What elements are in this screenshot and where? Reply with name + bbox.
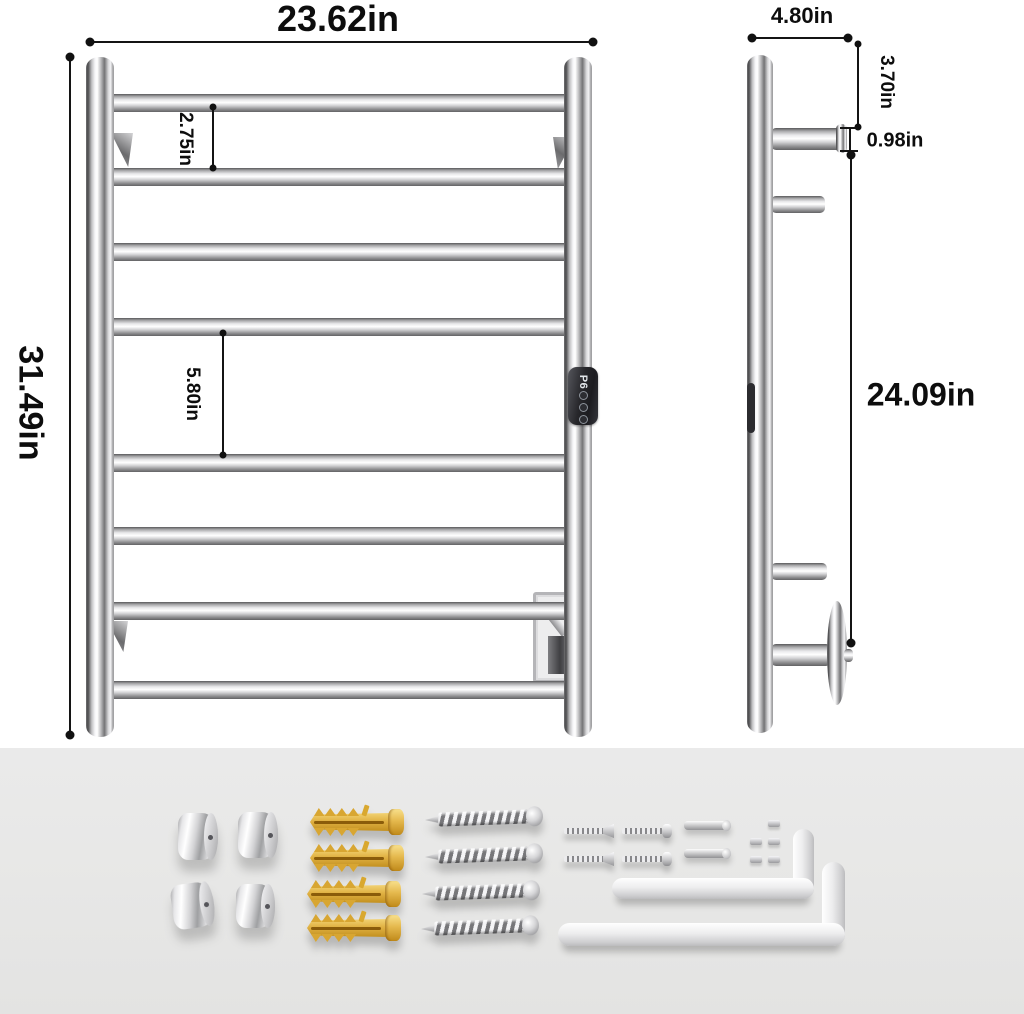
dimension-endpoint-dot bbox=[748, 34, 757, 43]
pan-head-screw bbox=[622, 852, 672, 866]
screw-thread bbox=[438, 846, 529, 863]
screw-head bbox=[662, 852, 672, 866]
mounting-screw bbox=[421, 915, 540, 939]
anchor-fins bbox=[314, 844, 362, 852]
anchor-fins bbox=[311, 934, 359, 942]
anchor-fins bbox=[311, 880, 359, 888]
anchor-fins bbox=[311, 914, 359, 922]
towel-bar-8 bbox=[104, 681, 576, 699]
wall-anchor bbox=[306, 844, 404, 872]
mount-cap bbox=[169, 880, 217, 930]
connector-pin bbox=[684, 849, 731, 858]
towel-bar-4 bbox=[104, 318, 576, 336]
depth-dimension-label: 4.80in bbox=[771, 3, 833, 29]
anchor-slot bbox=[311, 927, 381, 930]
side-bracket-bottom bbox=[771, 644, 831, 666]
mount-cap bbox=[178, 813, 218, 860]
side-bar-stub-upper bbox=[771, 196, 825, 213]
anchor-fins bbox=[311, 900, 359, 908]
dimension-endpoint-dot bbox=[86, 38, 95, 47]
control-panel: P6 bbox=[568, 367, 598, 425]
grub-screw bbox=[768, 856, 780, 863]
dimension-endpoint-dot bbox=[589, 38, 598, 47]
anchor-slot bbox=[314, 857, 384, 860]
panel-mode-button-icon bbox=[579, 415, 588, 424]
pan-head-screw bbox=[622, 824, 672, 838]
anchor-collar bbox=[385, 881, 401, 907]
screw-head bbox=[662, 824, 672, 838]
panel-timer-button-icon bbox=[579, 403, 588, 412]
wall-anchor bbox=[303, 880, 401, 908]
screw-thread bbox=[434, 918, 525, 935]
screw-head bbox=[522, 915, 540, 936]
dimension-endpoint-dot bbox=[220, 330, 227, 337]
dimension-endpoint-dot bbox=[847, 639, 856, 648]
anchor-slot bbox=[311, 893, 381, 896]
towel-bar-1 bbox=[104, 94, 576, 112]
flat-head-screw bbox=[564, 824, 614, 838]
dimension-endpoint-dot bbox=[66, 731, 75, 740]
bracket-span-dimension-line bbox=[850, 155, 852, 643]
screw-head bbox=[603, 824, 614, 838]
towel-bar-6 bbox=[104, 527, 576, 545]
height-dimension-line bbox=[69, 57, 71, 735]
width-dimension-label: 23.62in bbox=[277, 0, 399, 40]
mount-cap bbox=[238, 812, 278, 858]
depth-dimension-line bbox=[752, 37, 848, 39]
mount-cap bbox=[236, 884, 275, 928]
screw-head bbox=[603, 852, 614, 866]
dimension-endpoint-dot bbox=[210, 104, 217, 111]
product-dimension-diagram: P6 23.62in 31.49in 2.75in 5.80in bbox=[0, 0, 1024, 1014]
bracket-span-dimension-label: 24.09in bbox=[867, 377, 976, 414]
wall-anchor bbox=[303, 914, 401, 942]
height-dimension-label: 31.49in bbox=[11, 345, 50, 460]
anchor-fins bbox=[314, 808, 362, 816]
mounting-screw bbox=[422, 880, 541, 904]
wall-anchor bbox=[306, 808, 404, 836]
top-offset-dimension-line bbox=[857, 44, 859, 127]
top-gap-dimension-line bbox=[212, 107, 214, 168]
top-offset-dimension-label: 3.70in bbox=[875, 55, 897, 109]
anchor-collar bbox=[388, 809, 404, 835]
anchor-slot bbox=[314, 821, 384, 824]
mounting-screw bbox=[425, 806, 544, 830]
towel-bar-5 bbox=[104, 454, 576, 472]
side-bracket-top bbox=[771, 128, 841, 150]
screw-head bbox=[526, 806, 544, 827]
screw-thread bbox=[438, 809, 529, 826]
grub-screw bbox=[750, 856, 762, 863]
dimension-endpoint-dot bbox=[855, 41, 862, 48]
bar-diameter-dimension-line bbox=[849, 129, 851, 150]
screw-head bbox=[523, 880, 541, 901]
mounting-screw bbox=[425, 843, 544, 867]
allen-key bbox=[612, 878, 814, 899]
flat-head-screw bbox=[564, 852, 614, 866]
towel-bar-3 bbox=[104, 243, 576, 261]
side-control-panel-edge bbox=[747, 383, 755, 433]
screw-thread bbox=[564, 856, 605, 862]
connector-pin bbox=[684, 821, 731, 830]
screw-thread bbox=[564, 828, 605, 834]
bar-diameter-dimension-label: 0.98in bbox=[867, 130, 924, 153]
side-bar-stub-lower bbox=[771, 563, 827, 580]
hardware-tray bbox=[0, 748, 1024, 1014]
towel-bar-2 bbox=[104, 168, 576, 186]
left-post bbox=[86, 57, 114, 737]
anchor-collar bbox=[388, 845, 404, 871]
grub-screw bbox=[750, 838, 762, 845]
anchor-fins bbox=[314, 864, 362, 872]
middle-gap-dimension-label: 5.80in bbox=[181, 367, 203, 421]
top-gap-dimension-label: 2.75in bbox=[174, 112, 196, 166]
dimension-endpoint-dot bbox=[844, 34, 853, 43]
anchor-collar bbox=[385, 915, 401, 941]
anchor-fins bbox=[314, 828, 362, 836]
middle-gap-dimension-line bbox=[222, 333, 224, 455]
side-bracket-nub bbox=[844, 649, 853, 662]
dimension-endpoint-dot bbox=[210, 165, 217, 172]
grub-screw bbox=[768, 838, 780, 845]
panel-display-text: P6 bbox=[577, 375, 589, 389]
panel-power-button-icon bbox=[579, 391, 588, 400]
dimension-endpoint-dot bbox=[220, 452, 227, 459]
dimension-endpoint-dot bbox=[66, 53, 75, 62]
wall-bracket-cone-top-left bbox=[111, 133, 133, 167]
dimension-endpoint-dot bbox=[847, 151, 856, 160]
grub-screw bbox=[768, 820, 780, 827]
screw-thread bbox=[622, 828, 663, 834]
width-dimension-line bbox=[90, 41, 593, 43]
screw-thread bbox=[622, 856, 663, 862]
screw-head bbox=[526, 843, 544, 864]
allen-key bbox=[558, 923, 845, 946]
screw-thread bbox=[435, 883, 526, 900]
towel-bar-7 bbox=[104, 602, 576, 620]
